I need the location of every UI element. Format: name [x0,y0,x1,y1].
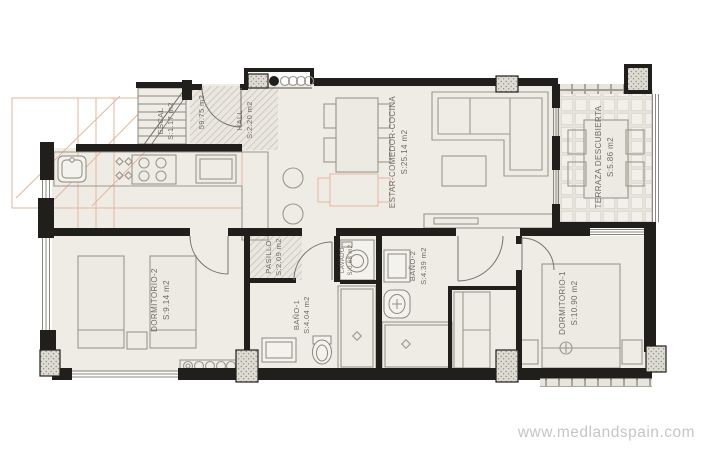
total-area-label: 59.75 m2 [197,95,206,129]
floorplan-drawing: ESCAL S:1.17 m2 59.75 m2 HALL S:2.20 m2 … [0,0,705,454]
room-label-terraza: TERRAZA DESCUBIERTA [594,105,603,208]
room-label-dormitorio1: DORMITORIO-1 [558,271,567,335]
room-label-bano1: BAÑO-1 [292,300,301,330]
room-area-pasillo: S:2.09 m2 [274,238,283,276]
room-area-dormitorio2: S:9.14 m2 [162,280,171,320]
room-area-dormitorio1: S:10.90 m2 [570,280,579,325]
room-area-terraza: S:5.86 m2 [606,137,615,177]
single-bed [78,256,124,348]
room-label-bano2: BAÑO-2 [408,251,417,281]
terrace-right-wall [653,94,659,222]
dining-table [336,98,378,172]
room-label-estar: ESTAR-COMEDOR-COCINA [388,96,397,209]
room-label-dormitorio2: DORMITORIO-2 [150,268,159,332]
room-area-bano1: S:4.04 m2 [302,296,311,334]
room-area-hall: S:2.20 m2 [245,101,254,139]
room-area-estar: S:25.14 m2 [400,129,409,174]
room-label-lavado: LAVADO [340,247,346,273]
toilet-icon [313,336,332,364]
room-label-escalera: ESCAL [156,108,165,135]
room-area-lavado: S:0.68 m2 [348,244,354,275]
double-bed [542,264,620,368]
light-symbol [560,342,572,354]
floorplan-image: ESCAL S:1.17 m2 59.75 m2 HALL S:2.20 m2 … [0,0,705,454]
window-ledge [540,378,652,387]
room-label-pasillo: PASILLO [264,240,273,274]
kitchen-backsplash [76,144,242,152]
window [590,230,644,235]
room-area-escalera: S:1.17 m2 [166,102,175,140]
toilet-icon [384,290,410,318]
room-area-bano2: S:4.39 m2 [419,247,428,285]
kitchen-sink-icon [58,156,86,182]
room-label-hall: HALL [235,110,244,130]
watermark: www.medlandspain.com [518,424,695,442]
